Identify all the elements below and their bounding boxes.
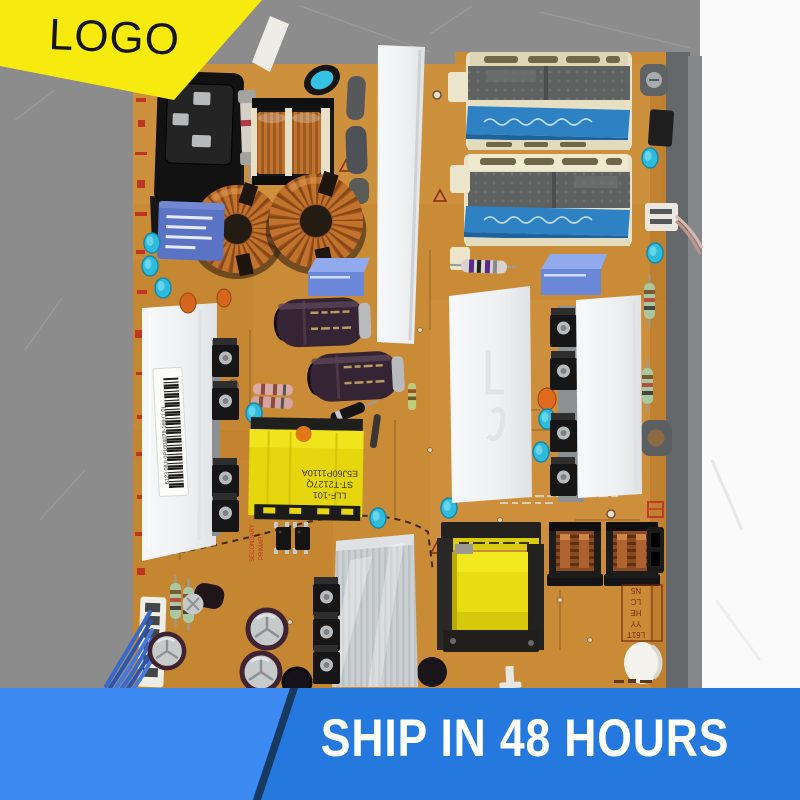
blue-cube-cap-1 [308,258,370,296]
svg-text:LLF-101: LLF-101 [313,490,347,501]
black-component [648,109,674,147]
screw-grommet-top [640,64,668,96]
ac-prong [172,113,188,126]
svg-text:HE: HE [630,608,641,617]
ship-banner-accent [0,688,300,800]
electrolytic-cap-1 [273,297,372,348]
product-photo: 6123 08JL0P1004078-169 (1.0) [0,0,800,800]
svg-text:E5J60P1110A: E5J60P1110A [302,468,358,479]
blue-cube-cap-2 [541,254,607,295]
disc-cap-cyan [647,243,663,263]
common-mode-choke [251,98,334,185]
board-edge-shadow [666,52,690,688]
ceramic-cap-cyan [155,278,171,298]
ac-prong [193,92,210,106]
pcb-photo: 6123 08JL0P1004078-169 (1.0) [0,0,800,800]
electrolytic-top-view [150,634,184,668]
white-round-component [624,642,660,684]
main-transformer-bottom [437,522,544,652]
dark-cap-top [417,657,447,687]
transformer-top-b [464,154,632,246]
silkscreen-primary: PRIMARY [259,533,265,560]
electrolytic-top-view [248,610,286,648]
ceramic-cap-cyan [142,256,158,276]
right-heatsink [576,295,642,498]
ceramic-cap-cyan [533,442,549,462]
ship-banner: SHIP IN 48 HOURS [0,688,800,800]
electrolytic-top-view [242,653,280,691]
white-table-area [700,0,800,690]
to220-transistor [313,577,340,684]
cap-top-silver [183,594,204,615]
x2-film-capacitor [157,201,225,261]
yellow-transformer-1: LLF-101 ST-T2127Q E5J60P1110A [248,417,364,521]
transformer-top-a [466,52,632,150]
output-choke-1 [547,522,603,586]
ship-banner-text: SHIP IN 48 HOURS [321,708,665,769]
svg-text:L61T: L61T [627,630,645,639]
grommet-hole [641,420,672,456]
ac-prong [192,135,211,148]
ceramic-cap-cyan [370,508,386,528]
svg-text:ST-T2127Q: ST-T2127Q [306,479,353,490]
barcode-sticker: 6123 08JL0P1004078-169 (1.0) [153,367,189,496]
svg-text:N5: N5 [630,586,641,595]
svg-text:YY: YY [630,619,641,628]
logo-text: LOGO [48,10,181,66]
ceramic-cap-cyan [144,233,160,253]
svg-text:LC: LC [631,597,641,606]
black-socket [647,527,664,573]
disc-cap-cyan [642,148,658,168]
silkscreen-secondary: SECONDARY [250,524,256,562]
gray-sticker [455,544,473,554]
